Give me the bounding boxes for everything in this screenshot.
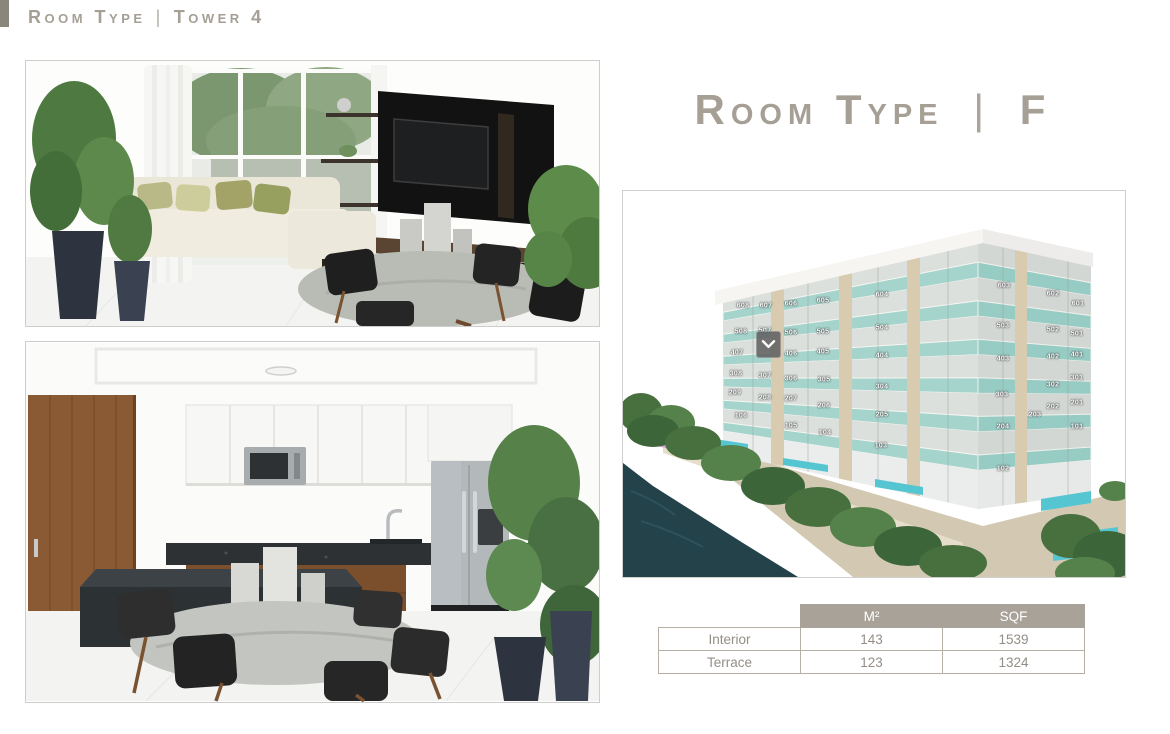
header-divider: |: [146, 7, 174, 28]
row-label: Interior: [659, 628, 801, 651]
building-photo: 6086076066056046036026015085075065055045…: [622, 190, 1126, 578]
row-label: Terrace: [659, 651, 801, 674]
building-illustration: [623, 191, 1125, 577]
chevron-down-button[interactable]: [756, 331, 781, 358]
header-accent-square: [0, 0, 9, 27]
room-type-title-main: Room Type: [695, 86, 944, 133]
page-header-title: Room Type: [28, 7, 146, 28]
chevron-down-icon: [757, 332, 780, 357]
spec-table-header-sqf: SQF: [943, 605, 1085, 628]
living-room-photo: [25, 60, 600, 327]
spec-table-header-m2: M²: [801, 605, 943, 628]
living-room-illustration: [26, 61, 599, 326]
table-row: Terrace 123 1324: [659, 651, 1085, 674]
row-sqf-value: 1539: [943, 628, 1085, 651]
page-header: Room Type | Tower 4: [28, 2, 265, 32]
kitchen-photo: [25, 341, 600, 703]
row-m2-value: 143: [801, 628, 943, 651]
spec-table-corner: [659, 605, 801, 628]
tv-wall-panel: [378, 91, 554, 226]
microwave: [244, 447, 306, 485]
room-type-title: Room Type | F: [622, 86, 1124, 134]
door-handle: [34, 539, 38, 557]
page-header-subtitle: Tower 4: [174, 7, 265, 28]
room-type-variant: F: [1020, 86, 1052, 133]
row-m2-value: 123: [801, 651, 943, 674]
spec-table: M² SQF Interior 143 1539 Terrace 123 132…: [658, 604, 1085, 674]
room-type-divider: |: [961, 86, 1002, 133]
table-row: Interior 143 1539: [659, 628, 1085, 651]
kitchen-illustration: [26, 342, 599, 702]
row-sqf-value: 1324: [943, 651, 1085, 674]
fern-plant: [524, 165, 599, 289]
